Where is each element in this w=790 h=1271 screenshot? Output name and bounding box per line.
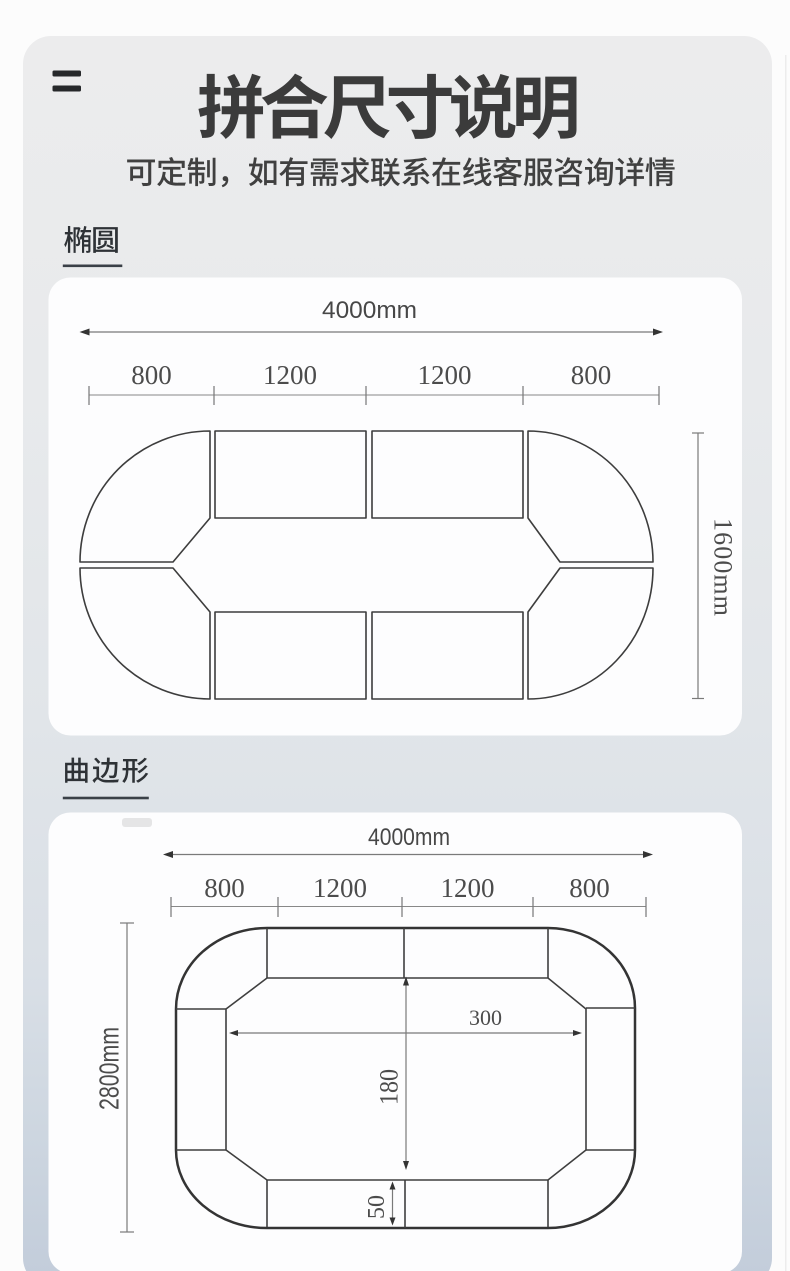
- svg-text:1200: 1200: [263, 360, 317, 390]
- svg-text:800: 800: [569, 873, 610, 903]
- svg-text:300: 300: [469, 1005, 502, 1030]
- svg-text:1200: 1200: [418, 360, 472, 390]
- svg-text:1200: 1200: [313, 873, 367, 903]
- svg-text:1600mm: 1600mm: [709, 518, 738, 616]
- svg-text:800: 800: [131, 360, 172, 390]
- svg-text:800: 800: [571, 360, 612, 390]
- svg-text:4000mm: 4000mm: [368, 824, 450, 851]
- svg-text:1200: 1200: [441, 873, 495, 903]
- svg-text:2800mm: 2800mm: [94, 1027, 125, 1110]
- svg-text:800: 800: [204, 873, 245, 903]
- svg-text:50: 50: [364, 1195, 390, 1219]
- svg-text:180: 180: [375, 1069, 404, 1105]
- svg-text:4000mm: 4000mm: [322, 297, 417, 324]
